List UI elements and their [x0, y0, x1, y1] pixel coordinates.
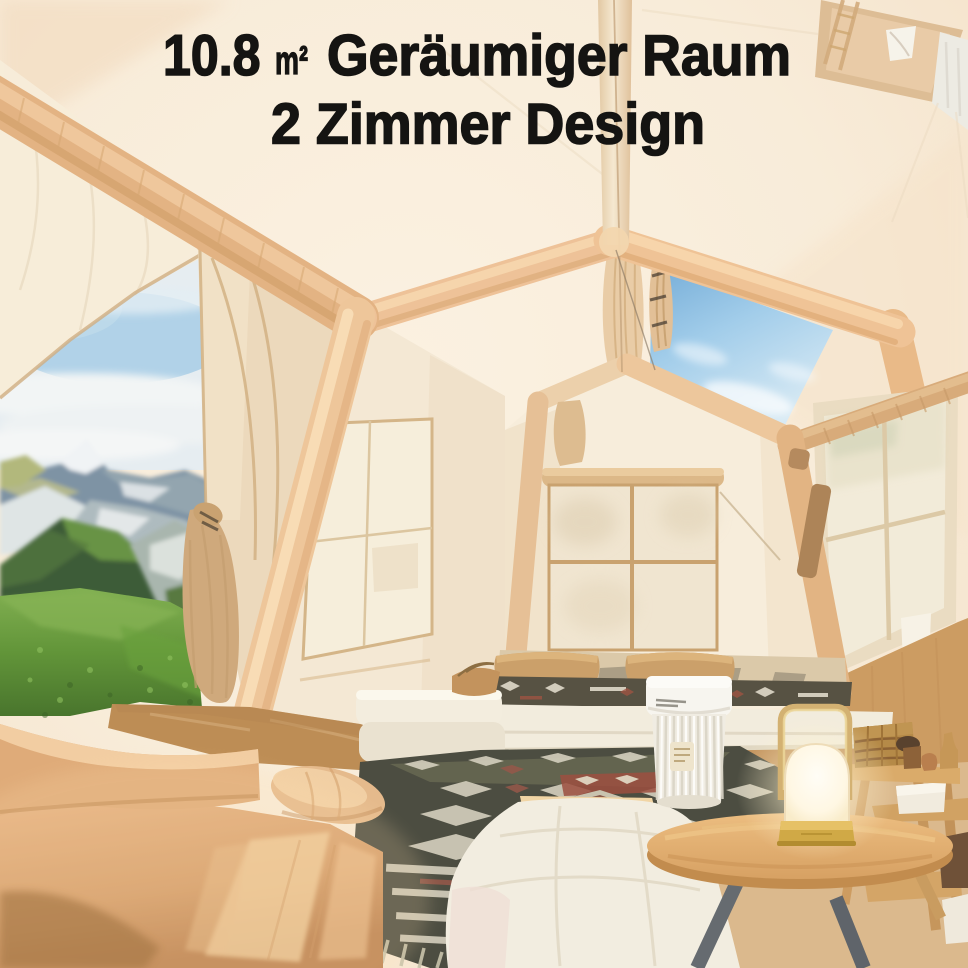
svg-text:2 Zimmer Design: 2 Zimmer Design	[271, 93, 705, 157]
svg-text:m²: m²	[275, 39, 308, 83]
svg-text:Geräumiger Raum: Geräumiger Raum	[327, 24, 791, 88]
svg-text:10.8: 10.8	[163, 24, 261, 88]
